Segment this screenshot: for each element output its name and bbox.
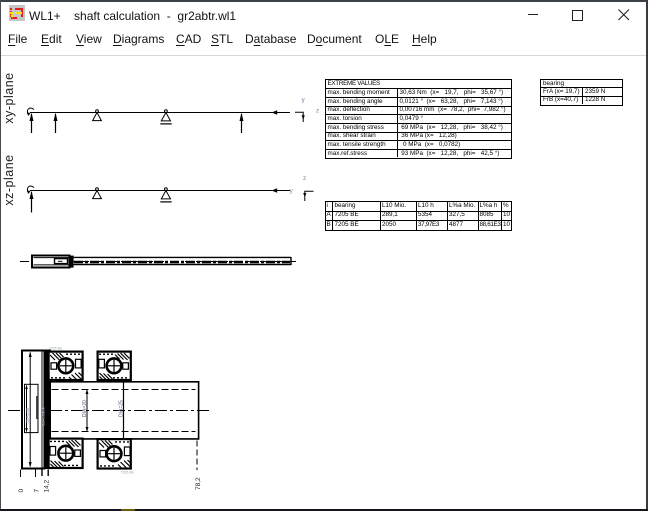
svg-text:z: z (303, 175, 306, 182)
svg-text:14,2: 14,2 (44, 479, 51, 492)
svg-text:y: y (302, 97, 306, 104)
svg-text:DIA=20: DIA=20 (82, 400, 88, 417)
svg-text:0: 0 (18, 489, 25, 493)
svg-text:y: y (290, 188, 294, 195)
svg-text:7205 BE: 7205 BE (49, 347, 63, 351)
svg-text:DIA=30: DIA=30 (25, 407, 30, 423)
svg-text:7205 BE: 7205 BE (121, 471, 135, 475)
svg-text:78,2: 78,2 (195, 477, 202, 490)
svg-text:DIA=32,9: DIA=32,9 (41, 407, 46, 426)
svg-text:z: z (316, 108, 319, 115)
svg-text:DIA=25: DIA=25 (119, 400, 125, 417)
svg-text:7: 7 (34, 489, 41, 493)
